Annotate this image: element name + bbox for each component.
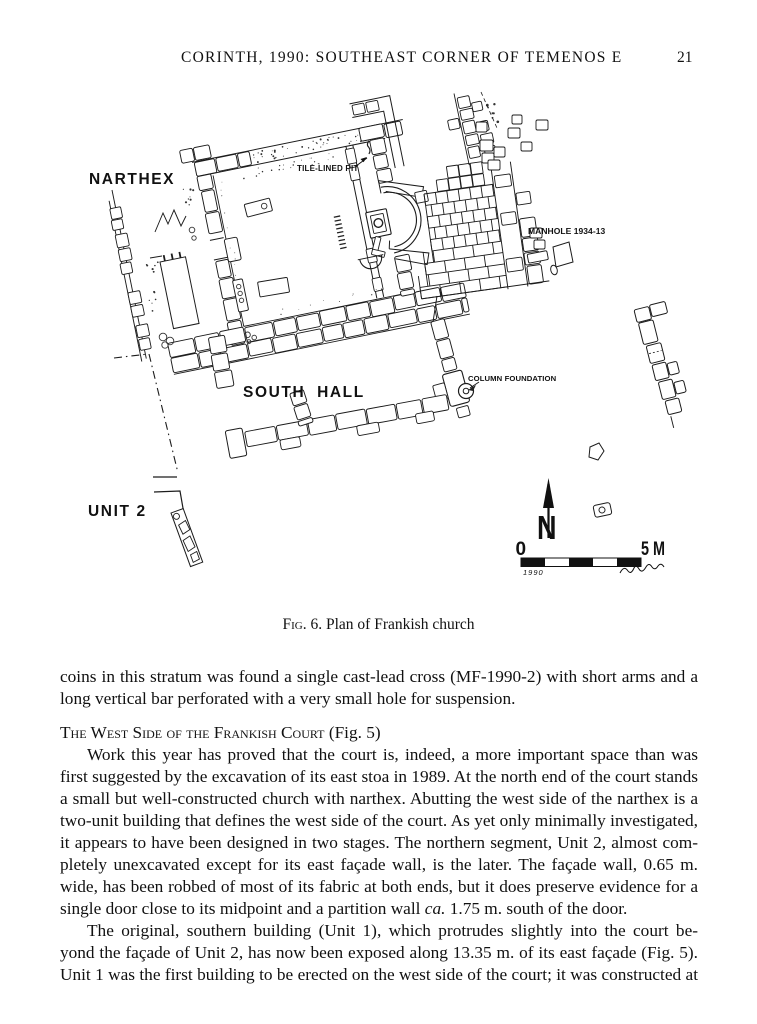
svg-text:UNIT 2: UNIT 2 bbox=[88, 503, 147, 520]
svg-text:N: N bbox=[537, 509, 557, 546]
svg-text:MANHOLE 1934-13: MANHOLE 1934-13 bbox=[528, 226, 605, 236]
svg-text:SOUTH HALL: SOUTH HALL bbox=[243, 384, 365, 401]
svg-text:5 M: 5 M bbox=[641, 539, 665, 560]
svg-text:NARTHEX: NARTHEX bbox=[89, 171, 175, 188]
svg-text:COLUMN FOUNDATION: COLUMN FOUNDATION bbox=[468, 374, 557, 383]
svg-text:1990: 1990 bbox=[523, 568, 544, 577]
svg-text:0: 0 bbox=[516, 539, 527, 560]
svg-text:TILE-LINED PIT: TILE-LINED PIT bbox=[297, 164, 358, 173]
